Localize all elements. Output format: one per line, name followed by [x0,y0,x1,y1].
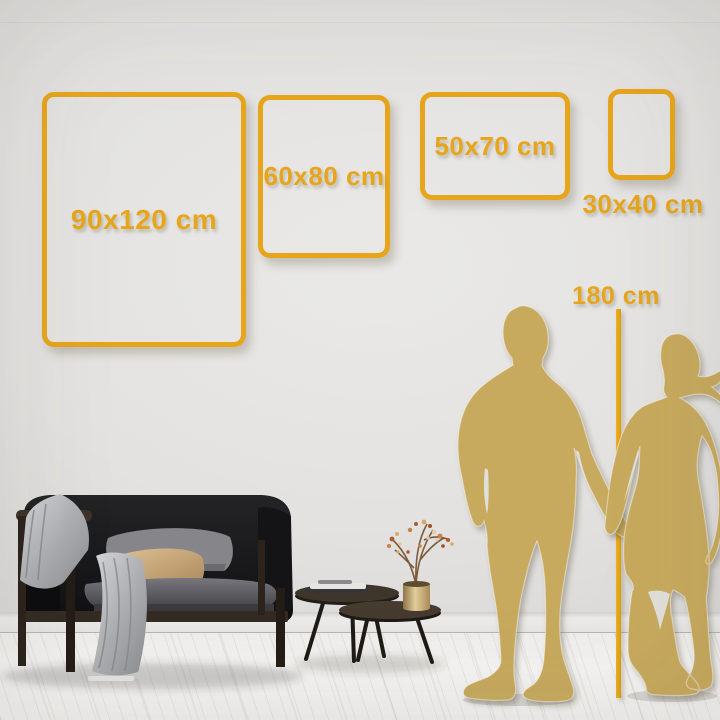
size-label-90x120: 90x120 cm [71,204,217,236]
vase-opening [403,581,430,587]
brass-vase [403,584,430,611]
size-label-30x40: 30x40 cm [578,189,708,220]
size-frame-50x70: 50x70 cm [420,92,570,200]
wood-leg-front-right [276,588,285,667]
size-label-50x70: 50x70 cm [434,131,555,162]
sofa-shadow [2,663,302,689]
size-frame-30x40 [608,89,675,180]
floor-book [88,676,134,681]
poster-size-guide-scene: 90x120 cm 60x80 cm 50x70 cm 30x40 cm 180… [0,0,720,720]
couple-silhouettes [440,300,720,720]
man-silhouette [458,306,629,702]
size-frame-90x120: 90x120 cm [42,92,246,347]
plant-flowers [387,520,454,554]
table-shadow [295,655,445,673]
coffee-tables [295,520,454,662]
woman-silhouette [605,334,720,696]
wood-post-right [258,540,265,615]
plant-branches [393,524,450,586]
sofa [16,494,293,681]
size-frame-60x80: 60x80 cm [258,95,390,258]
furniture-illustration [0,480,470,720]
size-label-60x80: 60x80 cm [263,161,384,192]
table-books [306,580,368,593]
wood-rail [20,611,288,622]
